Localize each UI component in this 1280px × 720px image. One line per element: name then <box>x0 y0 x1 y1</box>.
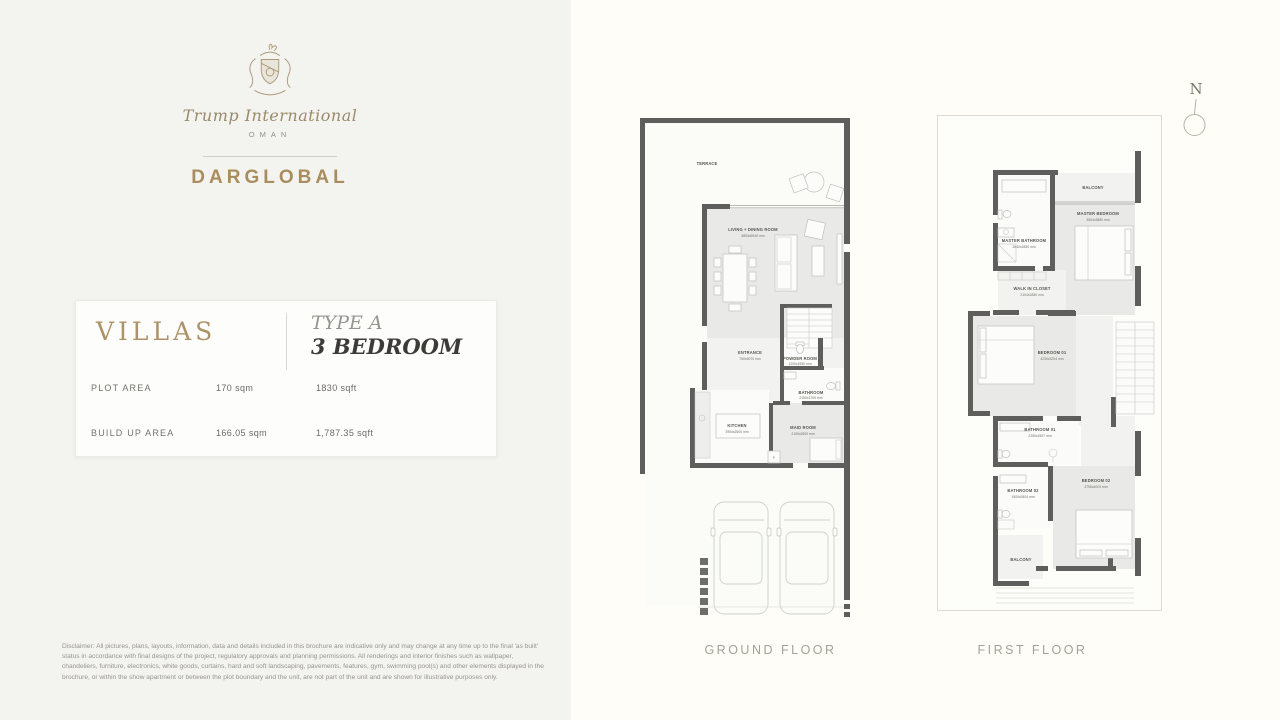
brochure-page: Trump International OMAN DARGLOBAL VILLA… <box>0 0 1280 720</box>
maid-bed-icon <box>810 438 842 461</box>
ground-floor-title: GROUND FLOOR <box>663 643 878 657</box>
buildup-area-label: BUILD UP AREA <box>91 428 174 438</box>
villa-category: VILLAS <box>96 317 216 346</box>
car-icon <box>777 502 837 614</box>
living-room-label: LIVING + DINING ROOM <box>728 227 778 232</box>
balcony-bottom-label: BALCONY <box>1010 557 1031 562</box>
bed-icon <box>1076 510 1132 558</box>
compass-north-label: N <box>1189 80 1202 98</box>
living-room-dim: 5853x5940 mm <box>741 234 765 238</box>
first-floor-title: FIRST FLOOR <box>925 643 1140 657</box>
bathroom-label: BATHROOM <box>798 390 823 395</box>
bathroom2-dim: 1900x2604 mm <box>1011 495 1035 499</box>
terrace-label: TERRACE <box>697 161 718 166</box>
master-bedroom-dim: 3554x3880 mm <box>1086 218 1110 222</box>
balcony-top-label: BALCONY <box>1082 185 1103 190</box>
left-panel: Trump International OMAN DARGLOBAL VILLA… <box>0 0 571 720</box>
closet-label: WALK IN CLOSET <box>1013 286 1050 291</box>
maid-room-label: MAID ROOM <box>790 425 816 430</box>
bathroom-dim: 2150x1750 mm <box>799 396 823 400</box>
developer-logo: DARGLOBAL <box>120 167 420 189</box>
fridge-label: F <box>773 456 775 460</box>
entrance-dim: 750x5070 mm <box>739 357 761 361</box>
toilet-icon <box>796 342 804 354</box>
entrance-label: ENTRANCE <box>738 350 762 355</box>
closet-dim: 2104x1880 mm <box>1020 293 1044 297</box>
villa-bedrooms: 3 BEDROOM <box>311 334 462 359</box>
car-icon <box>711 502 771 614</box>
villa-type: TYPE A <box>311 312 383 334</box>
plot-area-label: PLOT AREA <box>91 383 152 393</box>
brand-name: Trump International <box>120 106 420 125</box>
bathroom2-label: BATHROOM 02 <box>1007 488 1039 493</box>
bathroom1-label: BATHROOM 01 <box>1024 427 1056 432</box>
powder-room-label: POWDER ROOM <box>783 356 817 361</box>
card-divider <box>286 313 287 370</box>
powder-room-dim: 1200x1550 mm <box>788 362 812 366</box>
trump-crest-icon <box>241 42 299 106</box>
kitchen-dim: 3954x2500 mm <box>725 430 749 434</box>
master-bathroom-dim: 2640x1880 mm <box>1012 245 1036 249</box>
plot-area-sqm: 170 sqm <box>216 383 253 393</box>
bathroom1-dim: 2250x1557 mm <box>1028 434 1052 438</box>
buildup-area-sqm: 166.05 sqm <box>216 428 267 438</box>
bed-icon <box>1075 226 1133 280</box>
first-floor-plan: BALCONY MASTER BEDROOM 3554x3880 mm MAST… <box>936 114 1163 612</box>
bedroom2-dim: 3755x4004 mm <box>1084 485 1108 489</box>
compass-icon: N <box>1174 72 1218 142</box>
bedroom1-dim: 4230x3254 mm <box>1040 357 1064 361</box>
plot-area-sqft: 1830 sqft <box>316 383 357 393</box>
stairs-icon <box>1116 322 1154 414</box>
bed-icon <box>978 326 1034 384</box>
brand-location: OMAN <box>120 130 420 139</box>
bedroom1-label: BEDROOM 01 <box>1038 350 1067 355</box>
ground-floor-plan: TERRACE LIVING + DINING ROOM 5853x5940 m… <box>640 118 850 618</box>
villa-info-card: VILLAS TYPE A 3 BEDROOM PLOT AREA 170 sq… <box>75 300 497 457</box>
kitchen-label: KITCHEN <box>727 423 746 428</box>
maid-room-dim: 2150x2500 mm <box>791 432 815 436</box>
master-bathroom-label: MASTER BATHROOM <box>1002 238 1047 243</box>
buildup-area-sqft: 1,787.35 sqft <box>316 428 373 438</box>
master-bedroom-label: MASTER BEDROOM <box>1077 211 1119 216</box>
brand-divider <box>203 156 337 157</box>
bedroom2-label: BEDROOM 02 <box>1082 478 1111 483</box>
stairs-icon <box>787 308 832 348</box>
disclaimer-text: Disclaimer: All pictures, plans, layouts… <box>62 642 548 683</box>
